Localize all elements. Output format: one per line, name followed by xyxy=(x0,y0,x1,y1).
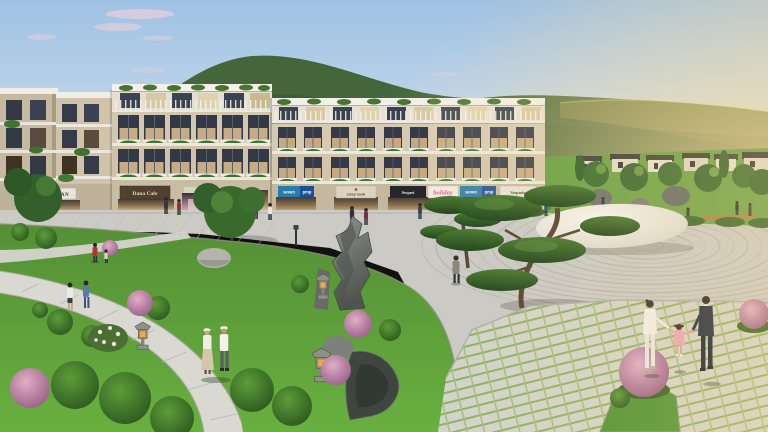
shop-sign-sequei: Sequei xyxy=(402,190,416,195)
shop-sign-pmp-1: pmp xyxy=(303,190,312,195)
shop-sign-seven-1: seven xyxy=(283,190,295,195)
shopping-village-rendering: JWAN xyxy=(0,0,768,432)
shop-sign-dana-cafe: Dana Cafe xyxy=(133,191,158,197)
rock-boulder-light xyxy=(197,248,231,268)
white-flower-bush xyxy=(88,324,128,352)
shop-sign-cosy-look: cosy look xyxy=(347,192,366,197)
warm-light-overlay xyxy=(460,0,768,432)
